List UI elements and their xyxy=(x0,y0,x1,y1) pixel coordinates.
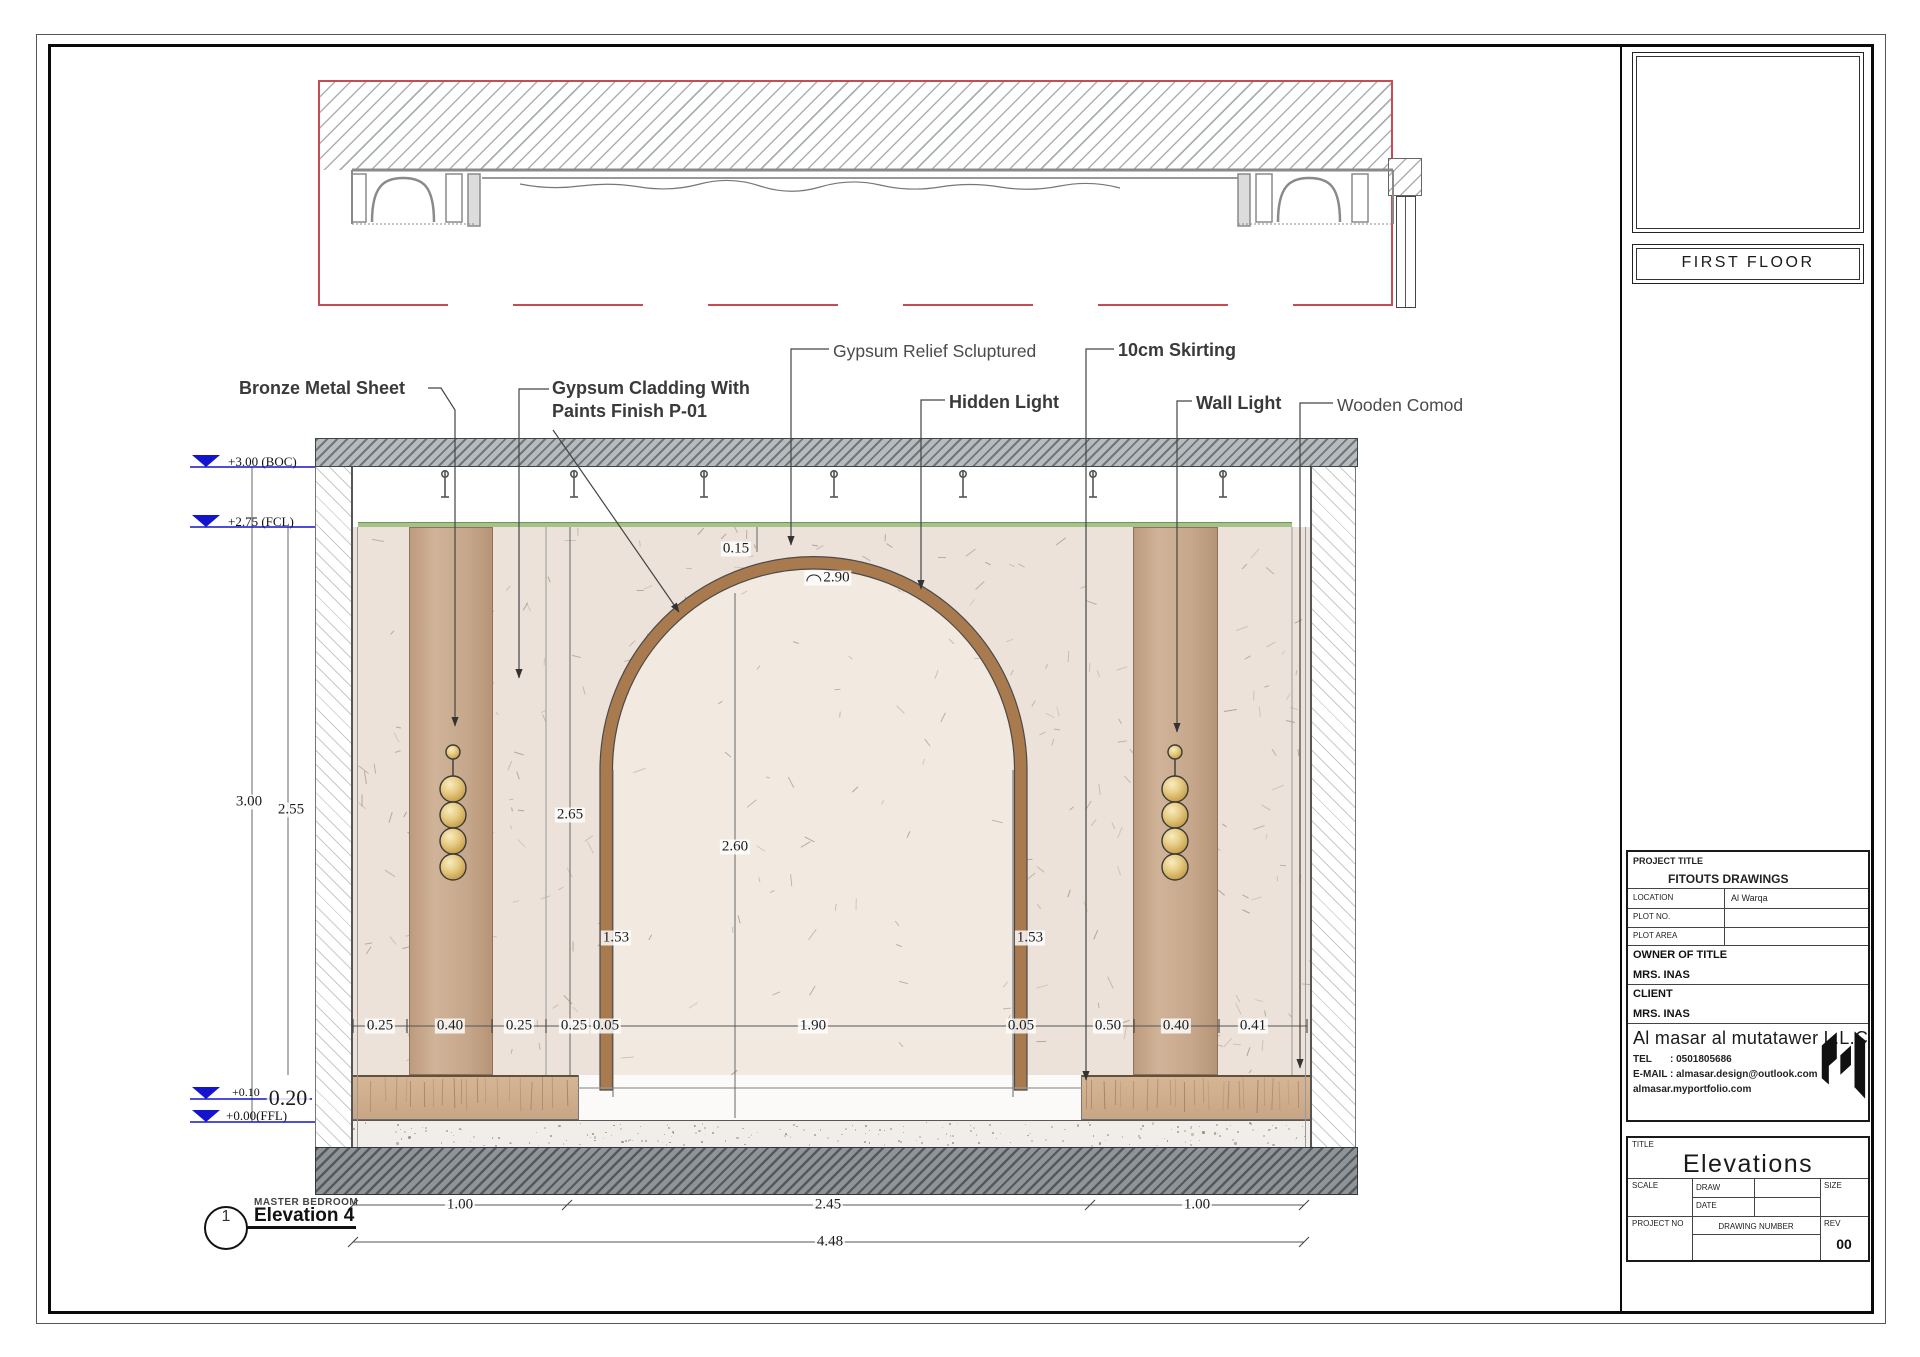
dim-row1-9: 0.41 xyxy=(1238,1019,1268,1034)
dim-row1-6: 0.05 xyxy=(1006,1019,1036,1034)
titleblock-divider xyxy=(1620,46,1622,1312)
dim-row1-7: 0.50 xyxy=(1093,1019,1123,1034)
plan-border-bottom-dashed xyxy=(318,304,1393,306)
level-boc: +3.00 (BOC) xyxy=(228,455,297,468)
drawing-sheet: Bronze Metal Sheet Gypsum Cladding With … xyxy=(0,0,1920,1357)
date-label: DATE xyxy=(1696,1201,1717,1210)
client-value: MRS. INAS xyxy=(1633,1008,1690,1020)
label-skirting: 10cm Skirting xyxy=(1118,339,1236,362)
email-value: : almasar.design@outlook.com xyxy=(1670,1069,1818,1080)
dim-260: 2.60 xyxy=(720,840,750,855)
dim-row2-0: 1.00 xyxy=(445,1198,475,1213)
project-no-label: PROJECT NO xyxy=(1632,1219,1683,1228)
owner-value: MRS. INAS xyxy=(1633,969,1690,981)
dim-153-left: 1.53 xyxy=(601,931,631,946)
label-gypsum-cladding-line1: Gypsum Cladding With xyxy=(552,377,750,400)
project-block: PROJECT TITLE FITOUTS DRAWINGS LOCATION … xyxy=(1626,850,1870,1122)
label-hidden-light: Hidden Light xyxy=(949,391,1059,414)
pb-line3 xyxy=(1628,927,1868,928)
dim-row1-1: 0.40 xyxy=(435,1019,465,1034)
ts-line2 xyxy=(1692,1197,1820,1198)
sheet-title: Elevations xyxy=(1628,1150,1868,1179)
floor-slab-band xyxy=(315,1147,1358,1195)
label-wall-light: Wall Light xyxy=(1196,392,1281,415)
pb-vdiv xyxy=(1724,888,1725,945)
size-label: SIZE xyxy=(1824,1181,1842,1190)
tel-value: : 0501805686 xyxy=(1670,1054,1732,1065)
owner-label: OWNER OF TITLE xyxy=(1633,949,1727,961)
dim-row1-8: 0.40 xyxy=(1161,1019,1191,1034)
location-value: Al Warqa xyxy=(1731,893,1768,903)
arch-niche-interior xyxy=(612,569,1015,1090)
dim-row2-2: 1.00 xyxy=(1182,1198,1212,1213)
titleblock-top-box xyxy=(1632,52,1864,233)
floor-label: FIRST FLOOR xyxy=(1632,254,1864,272)
view-marker-underline xyxy=(246,1226,356,1229)
dim-row1-3: 0.25 xyxy=(559,1019,589,1034)
tel-label: TEL xyxy=(1633,1054,1652,1065)
dim-row1-0: 0.25 xyxy=(365,1019,395,1034)
dim-015: 0.15 xyxy=(721,542,751,557)
pb-line5 xyxy=(1628,984,1868,985)
label-gypsum-cladding-line2: Paints Finish P-01 xyxy=(552,400,750,423)
pb-line4 xyxy=(1628,945,1868,946)
wooden-comod-left xyxy=(353,1075,578,1120)
draw-label: DRAW xyxy=(1696,1183,1720,1192)
level-010: +0.10 xyxy=(232,1086,260,1098)
bronze-panel-left xyxy=(409,527,493,1075)
wooden-comod-right xyxy=(1082,1075,1310,1120)
title-scale-block: TITLE Elevations SCALE DRAW DATE SIZE PR… xyxy=(1626,1136,1870,1262)
level-ffl: +0.00(FFL) xyxy=(226,1109,287,1122)
view-marker-number: 1 xyxy=(222,1208,231,1225)
label-wooden-comod: Wooden Comod xyxy=(1337,394,1463,417)
dim-total: 4.48 xyxy=(815,1235,845,1250)
label-gypsum-cladding: Gypsum Cladding With Paints Finish P-01 xyxy=(552,377,750,423)
plot-no-label: PLOT NO. xyxy=(1633,912,1670,921)
scale-label: SCALE xyxy=(1632,1181,1658,1190)
project-title-label: PROJECT TITLE xyxy=(1633,856,1703,866)
drawing-number-label: DRAWING NUMBER xyxy=(1692,1222,1820,1231)
dim-290: 2.90 xyxy=(804,571,851,586)
pb-line1 xyxy=(1628,888,1868,889)
project-title-value: FITOUTS DRAWINGS xyxy=(1668,872,1788,886)
pb-line2 xyxy=(1628,908,1868,909)
dim-153-right: 1.53 xyxy=(1015,931,1045,946)
arc-symbol xyxy=(806,575,821,582)
level-fcl: +2.75 (FCL) xyxy=(228,515,294,528)
view-marker-title: Elevation 4 xyxy=(254,1205,354,1227)
plan-molding-profiles xyxy=(315,120,1395,245)
dim-row1-4: 0.05 xyxy=(591,1019,621,1034)
plan-border-top xyxy=(318,80,1393,82)
dim-255: 2.55 xyxy=(276,803,306,818)
rev-label: REV xyxy=(1824,1219,1840,1228)
title-label: TITLE xyxy=(1632,1140,1654,1149)
center-recess xyxy=(578,1075,1082,1120)
ceiling-zone xyxy=(353,467,1310,527)
dim-row1-2: 0.25 xyxy=(504,1019,534,1034)
ts-line1 xyxy=(1628,1178,1868,1179)
dim-row2-1: 2.45 xyxy=(813,1198,843,1213)
ts-line3 xyxy=(1628,1216,1868,1217)
location-label: LOCATION xyxy=(1633,893,1673,902)
door-jamb-section xyxy=(1396,196,1416,308)
dim-300: 3.00 xyxy=(234,795,264,810)
right-wall-section xyxy=(1310,467,1356,1147)
door-jamb-inner-line xyxy=(1405,197,1406,307)
label-gypsum-relief: Gypsum Relief Scluptured xyxy=(833,340,1036,363)
rev-value: 00 xyxy=(1820,1236,1868,1252)
dim-row1-5: 1.90 xyxy=(798,1019,828,1034)
top-slab-band xyxy=(315,438,1358,467)
bronze-panel-right xyxy=(1133,527,1218,1075)
company-logo xyxy=(1820,1028,1866,1102)
view-marker-circle: 1 xyxy=(204,1206,248,1250)
email-label: E-MAIL xyxy=(1633,1069,1667,1080)
left-wall-section xyxy=(315,467,353,1147)
label-bronze-metal-sheet: Bronze Metal Sheet xyxy=(239,377,405,400)
ts-line4 xyxy=(1692,1234,1820,1235)
website-value: almasar.myportfolio.com xyxy=(1633,1084,1751,1095)
floor-screed-band xyxy=(353,1120,1310,1147)
dim-265: 2.65 xyxy=(555,808,585,823)
dim-020: 0.20 xyxy=(267,1087,310,1109)
plot-area-label: PLOT AREA xyxy=(1633,931,1677,940)
client-label: CLIENT xyxy=(1633,988,1673,1000)
pb-line6 xyxy=(1628,1023,1868,1024)
